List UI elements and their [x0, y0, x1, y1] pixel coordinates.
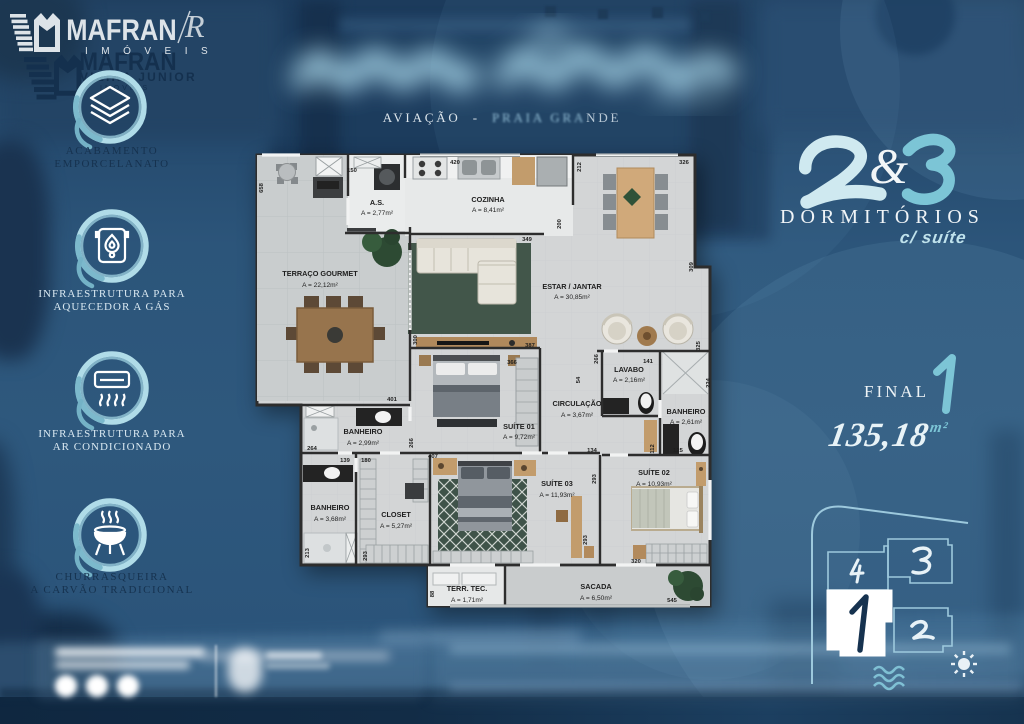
svg-text:387: 387: [525, 343, 535, 349]
svg-text:A = 10,93m²: A = 10,93m²: [636, 481, 673, 488]
svg-text:141: 141: [643, 359, 653, 365]
svg-text:325: 325: [696, 340, 702, 350]
svg-text:309: 309: [689, 261, 695, 271]
svg-text:A = 2,16m²: A = 2,16m²: [613, 377, 646, 384]
svg-text:212: 212: [577, 162, 583, 172]
svg-text:A = 3,67m²: A = 3,67m²: [561, 412, 594, 419]
svg-text:A.S.: A.S.: [370, 198, 384, 207]
svg-text:A = 11,93m²: A = 11,93m²: [539, 492, 575, 499]
svg-text:112: 112: [650, 444, 656, 453]
svg-text:293: 293: [592, 473, 598, 483]
svg-text:200: 200: [557, 219, 563, 229]
svg-text:545: 545: [667, 598, 677, 604]
svg-text:LAVABO: LAVABO: [614, 365, 644, 374]
svg-text:CIRCULAÇÃO: CIRCULAÇÃO: [552, 399, 601, 408]
svg-text:A = 9,72m²: A = 9,72m²: [503, 434, 536, 441]
svg-text:ESTAR / JANTAR: ESTAR / JANTAR: [542, 282, 602, 291]
svg-text:264: 264: [307, 446, 317, 452]
svg-text:150: 150: [347, 168, 357, 174]
svg-text:139: 139: [340, 458, 350, 464]
svg-text:A = 8,41m²: A = 8,41m²: [472, 207, 505, 214]
svg-text:A = 5,27m²: A = 5,27m²: [380, 523, 413, 530]
svg-text:BANHEIRO: BANHEIRO: [667, 407, 706, 416]
svg-text:366: 366: [507, 360, 517, 366]
svg-text:224: 224: [706, 377, 712, 387]
svg-text:401: 401: [387, 397, 397, 403]
svg-text:A = 2,99m²: A = 2,99m²: [347, 440, 380, 447]
svg-text:125: 125: [673, 448, 683, 454]
svg-text:CLOSET: CLOSET: [381, 510, 411, 519]
svg-text:COZINHA: COZINHA: [471, 195, 505, 204]
svg-text:134: 134: [587, 448, 597, 454]
svg-text:A = 3,68m²: A = 3,68m²: [314, 516, 347, 523]
svg-text:658: 658: [259, 182, 265, 192]
svg-text:A = 2,77m²: A = 2,77m²: [361, 210, 394, 217]
svg-text:SUÍTE 01: SUÍTE 01: [503, 422, 535, 431]
svg-text:349: 349: [522, 237, 532, 243]
svg-text:SUÍTE 02: SUÍTE 02: [638, 468, 670, 477]
svg-text:407: 407: [428, 454, 438, 460]
svg-text:TERRAÇO GOURMET: TERRAÇO GOURMET: [282, 269, 358, 278]
svg-text:180: 180: [361, 458, 371, 464]
svg-text:BANHEIRO: BANHEIRO: [344, 427, 383, 436]
svg-text:54: 54: [576, 376, 582, 383]
svg-text:SUÍTE 03: SUÍTE 03: [541, 479, 573, 488]
svg-text:A = 30,85m²: A = 30,85m²: [554, 294, 591, 301]
svg-text:SACADA: SACADA: [580, 582, 612, 591]
svg-text:A = 1,71m²: A = 1,71m²: [451, 597, 484, 604]
svg-text:A = 2,61m²: A = 2,61m²: [670, 419, 703, 426]
svg-text:420: 420: [450, 160, 460, 166]
svg-text:A = 6,50m²: A = 6,50m²: [580, 595, 613, 602]
svg-text:213: 213: [305, 547, 311, 557]
svg-text:326: 326: [679, 160, 689, 166]
svg-text:266: 266: [409, 437, 415, 447]
svg-text:320: 320: [631, 559, 641, 565]
svg-text:88: 88: [430, 590, 436, 597]
svg-text:293: 293: [583, 534, 589, 544]
svg-text:300: 300: [413, 335, 419, 345]
svg-text:A = 22,12m²: A = 22,12m²: [302, 282, 339, 289]
svg-text:266: 266: [594, 353, 600, 363]
svg-text:BANHEIRO: BANHEIRO: [311, 503, 350, 512]
svg-text:TERR. TEC.: TERR. TEC.: [447, 584, 488, 593]
svg-text:293: 293: [363, 550, 369, 560]
